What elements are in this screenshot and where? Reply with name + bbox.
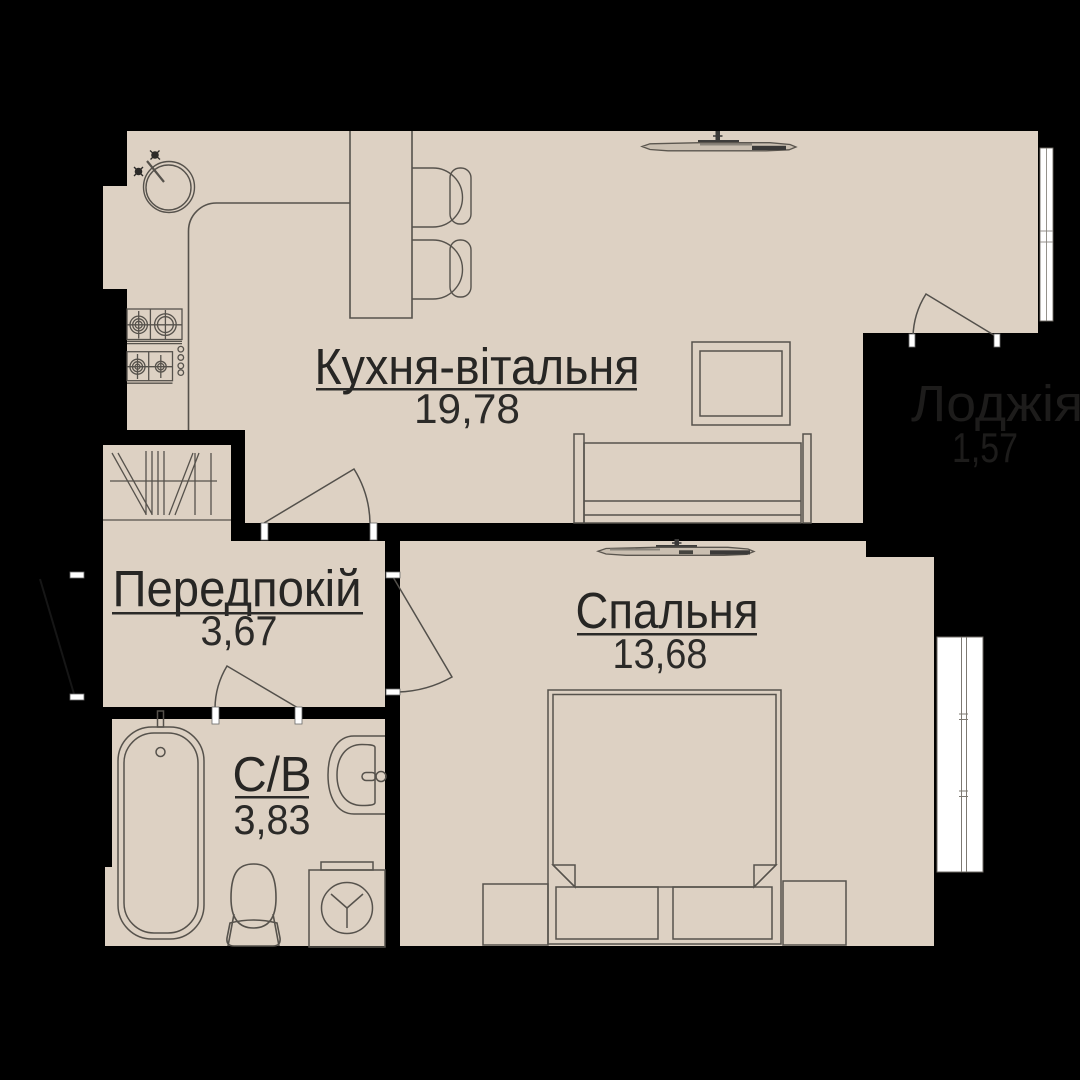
- svg-text:С/В: С/В: [233, 748, 312, 802]
- svg-text:1,57: 1,57: [952, 424, 1018, 471]
- svg-text:3,67: 3,67: [201, 607, 278, 654]
- svg-text:19,78: 19,78: [414, 385, 520, 432]
- svg-text:13,68: 13,68: [613, 630, 708, 677]
- svg-text:3,83: 3,83: [234, 796, 311, 843]
